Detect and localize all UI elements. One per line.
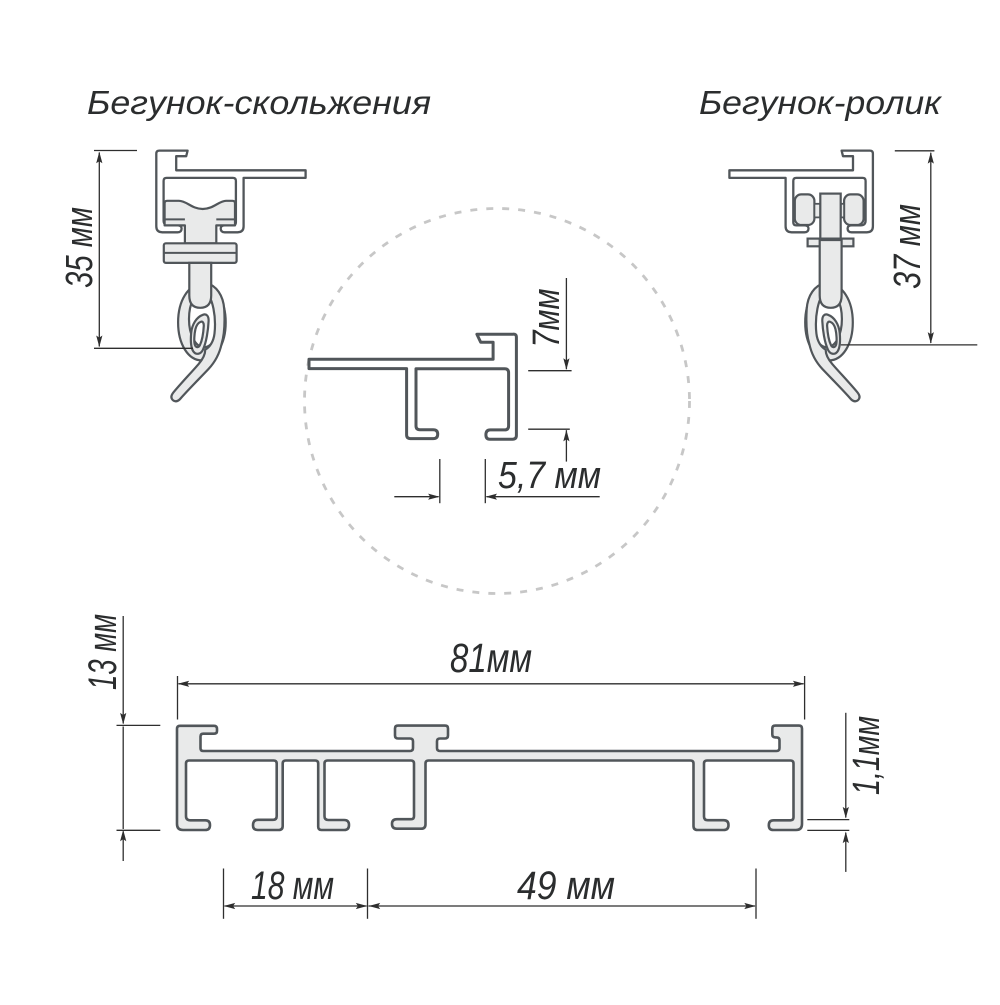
svg-text:1,1мм: 1,1мм — [846, 716, 888, 795]
svg-text:Бегунок-скольжения: Бегунок-скольжения — [87, 84, 431, 121]
svg-text:Бегунок-ролик: Бегунок-ролик — [699, 84, 943, 121]
svg-text:5,7 мм: 5,7 мм — [498, 455, 601, 497]
svg-text:37 мм: 37 мм — [887, 204, 929, 289]
svg-text:18 мм: 18 мм — [251, 864, 334, 908]
svg-text:35 мм: 35 мм — [59, 207, 101, 288]
svg-text:7мм: 7мм — [526, 289, 568, 348]
svg-text:49 мм: 49 мм — [517, 864, 615, 908]
svg-text:13 мм: 13 мм — [81, 614, 125, 690]
svg-text:81мм: 81мм — [450, 635, 532, 681]
